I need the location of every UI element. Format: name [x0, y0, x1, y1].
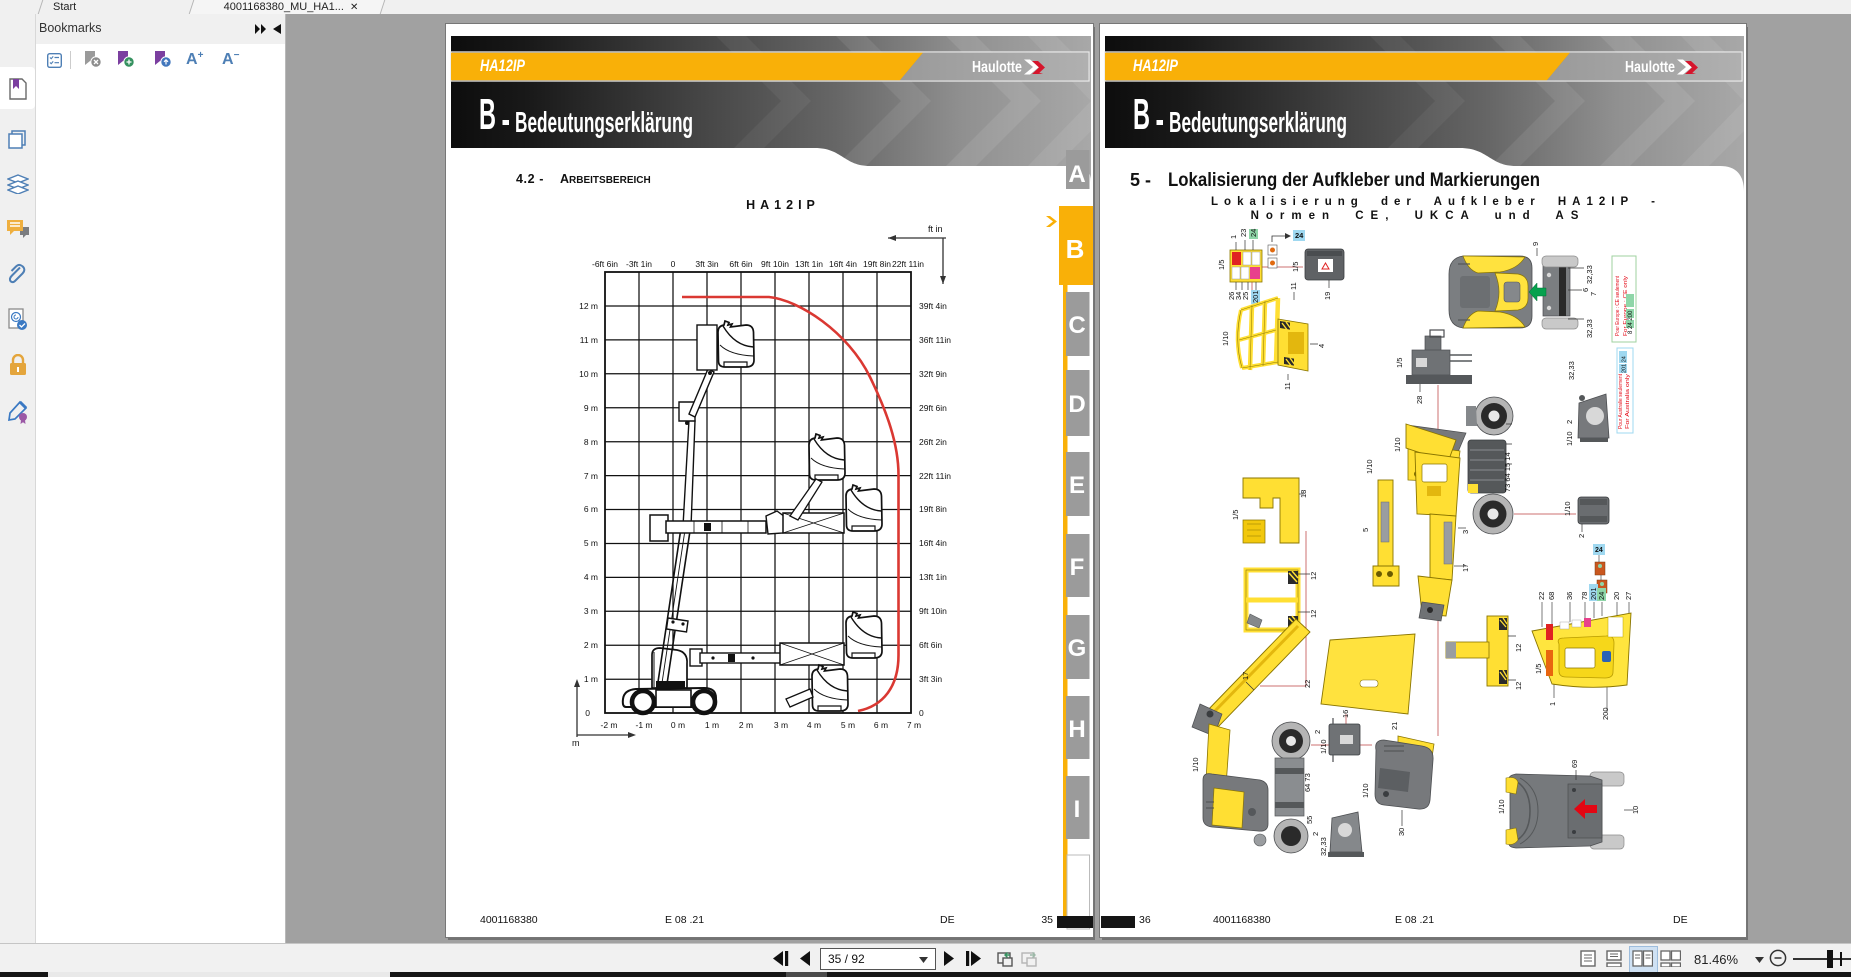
svg-text:5 m: 5 m: [584, 538, 598, 548]
svg-text:HA12IP: HA12IP: [1133, 57, 1179, 75]
svg-text:C: C: [1068, 312, 1085, 339]
svg-text:B: B: [1133, 90, 1150, 139]
svg-text:22: 22: [1303, 680, 1312, 688]
svg-text:DE: DE: [1673, 914, 1688, 926]
svg-text:2 m: 2 m: [584, 640, 598, 650]
svg-text:1/10: 1/10: [1497, 799, 1506, 814]
svg-text:Pour Australie seulement: Pour Australie seulement: [1618, 374, 1624, 429]
svg-text:1/10: 1/10: [1361, 783, 1370, 798]
svg-text:68: 68: [1547, 592, 1556, 600]
svg-text:13ft 1in: 13ft 1in: [795, 259, 823, 269]
svg-text:1/10: 1/10: [1191, 757, 1200, 772]
svg-text:9ft 10in: 9ft 10in: [919, 606, 947, 616]
svg-text:1/10: 1/10: [1365, 459, 1374, 474]
svg-text:26ft 2in: 26ft 2in: [919, 437, 947, 447]
svg-text:30: 30: [1397, 828, 1406, 836]
svg-text:7 m: 7 m: [907, 720, 921, 730]
svg-text:32,33: 32,33: [1567, 361, 1576, 380]
svg-text:11: 11: [1289, 282, 1298, 290]
svg-text:3ft 3in: 3ft 3in: [695, 259, 718, 269]
svg-text:4001168380: 4001168380: [480, 914, 538, 926]
svg-text:0 m: 0 m: [671, 720, 685, 730]
svg-text:2: 2: [1577, 534, 1586, 538]
svg-text:Haulotte: Haulotte: [972, 59, 1022, 76]
svg-text:12 m: 12 m: [579, 301, 598, 311]
svg-text:6ft 6in: 6ft 6in: [729, 259, 752, 269]
svg-text:B: B: [479, 90, 496, 139]
svg-text:H: H: [1068, 716, 1085, 743]
svg-text:69: 69: [1570, 760, 1579, 768]
svg-text:4.2 -: 4.2 -: [516, 172, 544, 186]
svg-text:2: 2: [1313, 730, 1322, 734]
svg-text:E 08 .21: E 08 .21: [1395, 914, 1434, 926]
svg-text:E 08 .21: E 08 .21: [665, 914, 704, 926]
svg-text:8 m: 8 m: [584, 437, 598, 447]
svg-text:1/5: 1/5: [1217, 260, 1226, 270]
svg-text:-2 m: -2 m: [601, 720, 618, 730]
svg-text:Bedeutungserklärung: Bedeutungserklärung: [1169, 107, 1347, 139]
svg-text:36: 36: [1139, 914, 1151, 926]
svg-text:2 m: 2 m: [739, 720, 753, 730]
svg-text:4: 4: [1317, 344, 1326, 348]
svg-text:HA12IP: HA12IP: [746, 198, 820, 212]
svg-text:24: 24: [1249, 229, 1258, 237]
svg-text:1 m: 1 m: [584, 674, 598, 684]
svg-text:12: 12: [1309, 572, 1318, 580]
svg-text:25: 25: [1241, 292, 1250, 300]
svg-text:-6ft 6in: -6ft 6in: [592, 259, 618, 269]
svg-text:28: 28: [1415, 396, 1424, 404]
svg-text:4001168380: 4001168380: [1213, 914, 1271, 926]
svg-text:12: 12: [1514, 644, 1523, 652]
svg-text:24: 24: [1597, 592, 1606, 600]
svg-text:23: 23: [1239, 229, 1248, 237]
svg-text:E: E: [1069, 472, 1085, 499]
svg-text:1/5: 1/5: [1395, 358, 1404, 368]
svg-text:DE: DE: [940, 914, 955, 926]
svg-text:5 -: 5 -: [1130, 170, 1151, 190]
svg-text:12: 12: [1514, 682, 1523, 690]
svg-text:B: B: [1066, 234, 1085, 264]
svg-text:A: A: [1068, 161, 1085, 188]
svg-text:17: 17: [1461, 564, 1470, 572]
svg-text:24: 24: [1595, 547, 1603, 554]
svg-text:9 m: 9 m: [584, 403, 598, 413]
svg-text:1: 1: [1229, 235, 1238, 239]
svg-text:39ft 4in: 39ft 4in: [919, 301, 947, 311]
svg-text:1/10: 1/10: [1393, 437, 1402, 452]
svg-text:17: 17: [1241, 672, 1250, 680]
svg-text:11: 11: [1283, 382, 1292, 390]
svg-text:6ft 6in: 6ft 6in: [919, 640, 942, 650]
svg-text:7: 7: [1589, 292, 1598, 296]
svg-text:64 73: 64 73: [1303, 773, 1312, 792]
svg-text:Haulotte: Haulotte: [1625, 59, 1675, 76]
svg-text:5 m: 5 m: [841, 720, 855, 730]
svg-text:201 24: 201 24: [1622, 356, 1628, 373]
svg-text:201: 201: [1251, 290, 1260, 303]
svg-text:ft in: ft in: [928, 224, 943, 234]
svg-text:-1 m: -1 m: [636, 720, 653, 730]
svg-text:8 24 200: 8 24 200: [1628, 310, 1634, 334]
svg-text:Normen CE, UKCA und AS: Normen CE, UKCA und AS: [1251, 210, 1586, 222]
svg-text:20: 20: [1612, 592, 1621, 600]
svg-text:29ft 6in: 29ft 6in: [919, 403, 947, 413]
svg-text:19: 19: [1323, 292, 1332, 300]
svg-text:3 m: 3 m: [584, 606, 598, 616]
svg-text:27: 27: [1624, 592, 1633, 600]
svg-text:2: 2: [1565, 420, 1574, 424]
svg-text:3: 3: [1461, 530, 1470, 534]
svg-text:10 m: 10 m: [579, 369, 598, 379]
svg-text:12: 12: [1309, 610, 1318, 618]
svg-text:Pour Europe : CE seulement: Pour Europe : CE seulement: [1615, 276, 1621, 336]
svg-text:6: 6: [1581, 288, 1590, 292]
svg-text:16: 16: [1341, 710, 1350, 718]
svg-text:19ft 8in: 19ft 8in: [919, 504, 947, 514]
svg-text:36ft 11in: 36ft 11in: [919, 335, 951, 345]
svg-text:3 m: 3 m: [774, 720, 788, 730]
svg-text:16ft 4in: 16ft 4in: [919, 538, 947, 548]
svg-text:Lokalisierung der Aufkleber H: Lokalisierung der Aufkleber HA12IP -: [1211, 196, 1661, 208]
svg-text:1/10: 1/10: [1221, 331, 1230, 346]
svg-text:35: 35: [1041, 914, 1053, 926]
svg-text:32ft 9in: 32ft 9in: [919, 369, 947, 379]
svg-text:0: 0: [585, 708, 590, 718]
svg-text:22ft 11in: 22ft 11in: [919, 471, 951, 481]
svg-text:22ft 11in: 22ft 11in: [892, 259, 924, 269]
svg-text:For Australia only: For Australia only: [1625, 374, 1631, 429]
svg-text:55: 55: [1305, 816, 1314, 824]
svg-text:9: 9: [1531, 242, 1540, 246]
svg-text:16ft 4in: 16ft 4in: [829, 259, 857, 269]
svg-text:24: 24: [1295, 231, 1304, 240]
svg-text:78: 78: [1580, 592, 1589, 600]
svg-text:D: D: [1068, 391, 1085, 418]
svg-text:32,33: 32,33: [1585, 265, 1594, 284]
svg-text:0: 0: [671, 259, 676, 269]
svg-text:7 m: 7 m: [584, 471, 598, 481]
svg-text:11 m: 11 m: [580, 335, 598, 345]
svg-text:13ft 1in: 13ft 1in: [919, 572, 947, 582]
svg-text:1 m: 1 m: [705, 720, 719, 730]
svg-text:1/5: 1/5: [1534, 664, 1543, 674]
svg-text:22: 22: [1537, 592, 1546, 600]
svg-text:4 m: 4 m: [807, 720, 821, 730]
svg-text:5: 5: [1361, 528, 1370, 532]
svg-text:2: 2: [1311, 832, 1320, 836]
svg-text:-3ft 1in: -3ft 1in: [626, 259, 652, 269]
svg-text:ARBEITSBEREICH: ARBEITSBEREICH: [560, 172, 651, 186]
svg-text:0: 0: [919, 708, 924, 718]
svg-text:6 m: 6 m: [584, 504, 598, 514]
svg-text:21: 21: [1390, 722, 1399, 730]
svg-text:1/10: 1/10: [1319, 739, 1328, 754]
svg-text:6 m: 6 m: [874, 720, 888, 730]
svg-text:32,33: 32,33: [1585, 319, 1594, 338]
svg-text:Lokalisierung der Aufkleber un: Lokalisierung der Aufkleber und Markieru…: [1168, 169, 1540, 191]
svg-text:HA12IP: HA12IP: [480, 57, 526, 75]
svg-text:G: G: [1068, 635, 1087, 662]
svg-text:1: 1: [1548, 702, 1557, 706]
svg-text:3ft 3in: 3ft 3in: [919, 674, 942, 684]
svg-text:1/5: 1/5: [1231, 510, 1240, 520]
svg-text:4 m: 4 m: [584, 572, 598, 582]
svg-text:1/10: 1/10: [1565, 431, 1574, 446]
svg-text:Bedeutungserklärung: Bedeutungserklärung: [515, 107, 693, 139]
svg-text:200: 200: [1601, 707, 1610, 720]
svg-text:1/5: 1/5: [1291, 262, 1300, 272]
svg-text:9ft 10in: 9ft 10in: [761, 259, 789, 269]
svg-text:32,33: 32,33: [1319, 837, 1328, 856]
svg-text:I: I: [1074, 796, 1081, 823]
svg-text:36: 36: [1565, 592, 1574, 600]
svg-text:F: F: [1070, 554, 1085, 581]
svg-text:1/10: 1/10: [1563, 501, 1572, 516]
svg-text:73 64 15 14: 73 64 15 14: [1503, 452, 1512, 492]
svg-text:m: m: [572, 738, 580, 748]
svg-text:19ft 8in: 19ft 8in: [863, 259, 891, 269]
